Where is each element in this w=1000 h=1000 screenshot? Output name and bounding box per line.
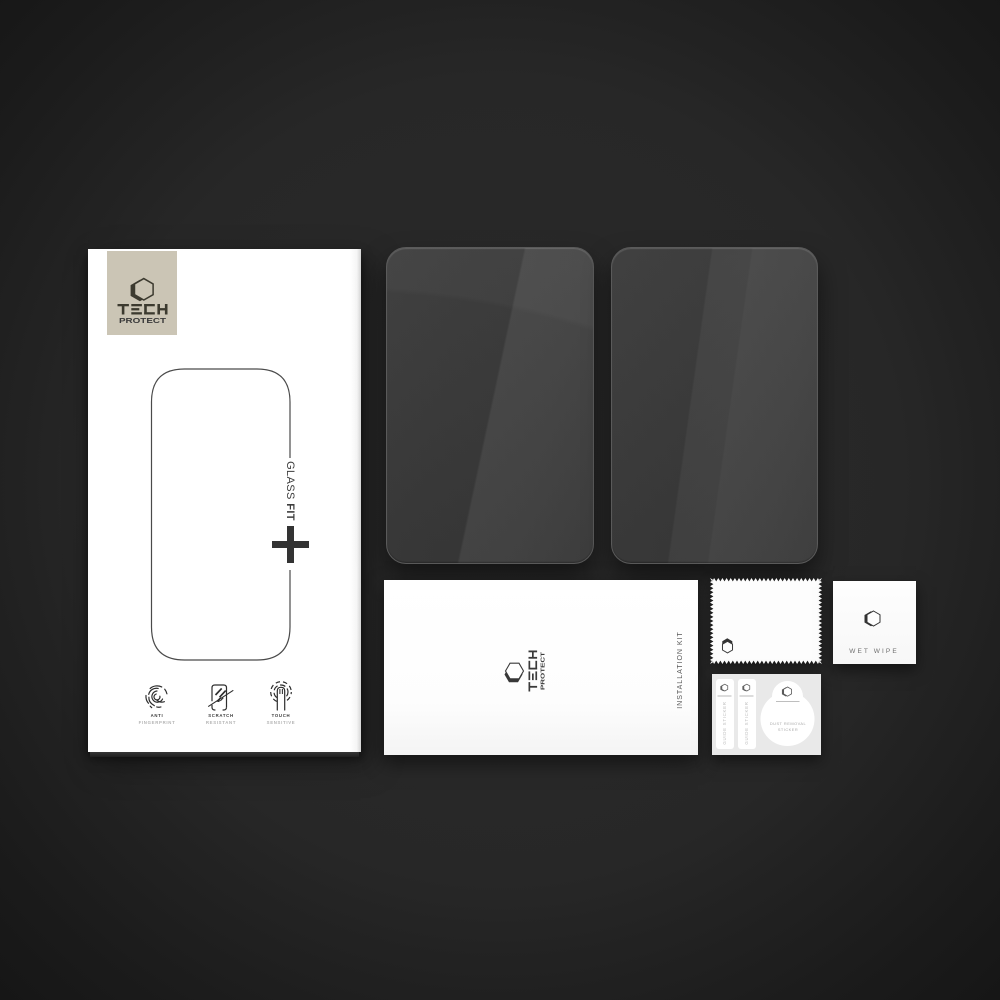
svg-text:PROTECT: PROTECT <box>119 318 167 325</box>
svg-text:PROTECT: PROTECT <box>540 651 546 690</box>
